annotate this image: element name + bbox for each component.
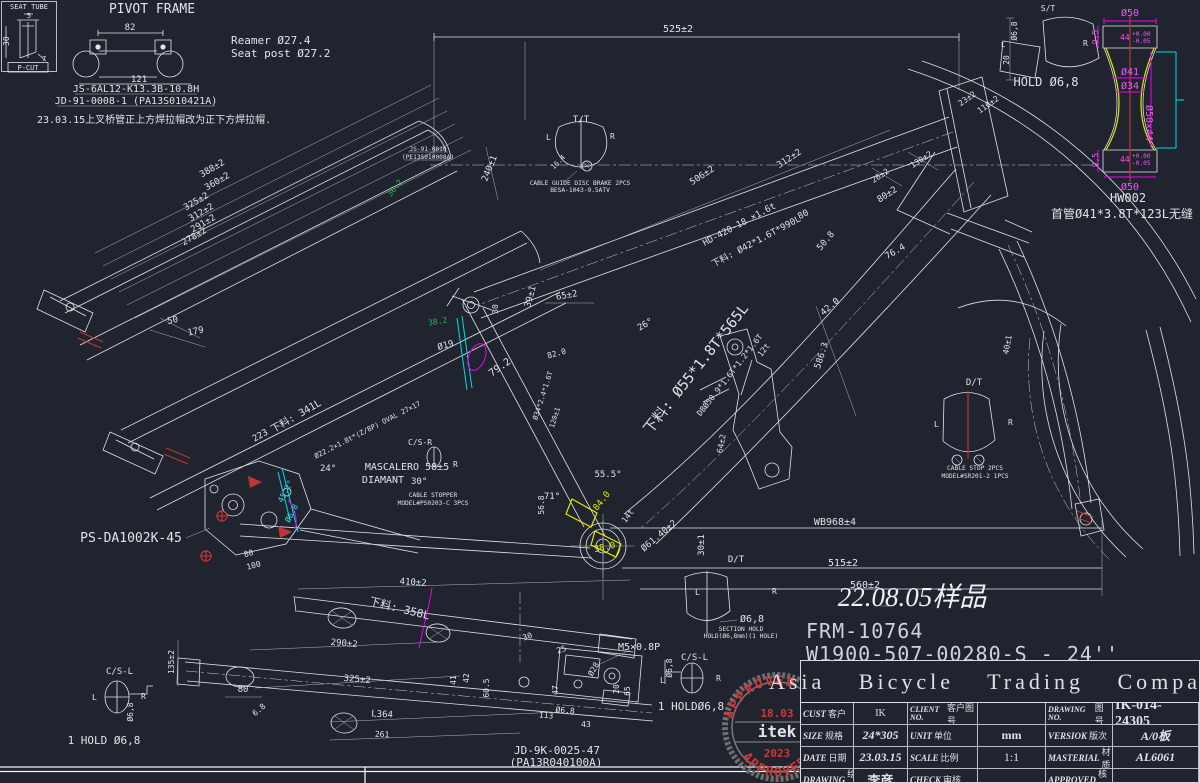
stamp-date: 18.03 [760,707,793,720]
csl-left-dia: Ø6,8 [125,702,135,721]
dim-410: 410±2 [399,577,427,589]
dim-30: 30 [2,36,11,46]
version-value: A/0板 [1113,725,1199,747]
dim-82: 82 [125,23,136,33]
csl-left-l: L [92,693,97,702]
dtr-left: L [934,420,939,429]
dtr-section-label: D/T [966,378,983,388]
dim-30-b: 30 [521,631,533,643]
dim-76-4: 76.4 [884,242,908,262]
dim-179: 179 [187,325,205,338]
hw-dia-34: Ø34 [1121,80,1139,92]
dim-64-2: 64±2 [715,433,727,454]
part-number-1: JS-6AL12-K13.3B-10.8H [73,84,199,95]
scale-cn: 比例 [941,751,959,764]
client-no-en: CLIENT NO. [910,706,945,722]
csl-left-label: C/S-L [106,667,133,677]
dim-80-2: 80±2 [876,185,900,205]
dim-42: 42 [462,673,471,683]
dim-586-3: 586.3 [813,341,831,370]
st-dim-20: 20 [1002,55,1011,65]
hw-44-top: 44 [1120,33,1130,42]
dim-290: 290±2 [330,638,358,650]
cable-guide-note-1: CABLE GUIDE DISC BRAKE 2PCS [530,180,631,187]
csl-right-l: L [660,676,665,685]
hw-dia-41: Ø41 [1121,66,1139,78]
dtr-right: R [1008,418,1013,427]
hw-tol-plus-bottom: +0.00 [1132,153,1151,160]
drawing-no-label: DRAWING NO.图号 [1046,703,1113,725]
dim-110-2: 110±2 [976,94,1001,115]
hw-9-5-bottom: 9,5 [1091,153,1100,168]
company-name: Asia Bicycle Trading Company [801,661,1199,703]
sample-date-label: 22.08.05样品 [838,582,987,612]
js91-part-b: (PE13S010008A) [402,154,454,161]
dt-hole-dia: Ø6,8 [740,613,764,625]
hold-note-right: 1 HOLDØ6,8 [658,700,724,713]
dia-61-40: Ø61.40±2 [639,518,679,554]
drawing-no-value: IK-014-24305 [1113,703,1199,725]
dim-6-8-s: 6.8 [251,702,268,718]
csr-right: R [453,460,458,469]
tt-left: L [546,133,551,142]
csr-label: C/S-R [408,438,432,447]
dim-38-2-green: 38.2 [427,315,448,327]
blank-358: 下料: 358L [368,594,432,623]
dim-50-8: 50.8 [815,230,837,253]
st-left: L [1001,41,1005,49]
mascalero-label: MASCALERO 58±5 [365,462,449,473]
dim-515: 515±2 [828,558,858,569]
unit-value: mm [978,725,1046,747]
drawn-en: DRAWING [803,776,845,783]
hw-tol-minus-bottom: -0.05 [1132,160,1151,167]
check-cn: 审核 [943,773,961,783]
approved-cn: 核准 [1098,769,1110,783]
csl-left-r: R [141,692,146,701]
tt-section-label: T/T [573,115,590,125]
cust-label: CUST客户 [801,703,854,725]
cust-en: CUST [803,710,826,718]
deg-71: 71° [544,492,560,502]
cable-stop-note-1: CABLE STOP 2PCS [947,465,1003,472]
st-hole-dia: Ø6,8 [1009,21,1019,40]
dia-6-8-cyan: Ø6.8 [282,502,300,524]
cable-stopper-2: MODEL#PS0203-C 3PCS [398,500,469,507]
dim-40-1: 40±1 [1001,334,1013,355]
client-no-cn: 客户图号 [947,703,975,725]
hw-44-bottom: 44 [1120,155,1130,164]
diamant-label: DIAMANT [362,475,404,486]
dim-wheelbase: WB968±4 [814,517,856,528]
hw-tol-minus-top: -0.05 [1132,38,1151,45]
hw-r-label: R [1083,39,1088,48]
dim-65-2: 65±2 [555,289,578,303]
dt-section-label: D/T [728,555,745,565]
dim-56-8: 56.8 [537,495,546,514]
part-number-2: JD-91-0008-1 (PA13S010421A) [55,96,218,107]
dim-50-left: 50 [166,315,179,327]
dim-30-mid: 30 [491,304,500,314]
version-label: VERSIOK版次 [1046,725,1113,747]
material-en: MASTERIAL [1048,754,1100,762]
dia-28: Ø28 [585,660,601,678]
cable-stop-note-2: MODEL#SR201-2 1PCS [941,473,1008,480]
stay-spec: Ø22.2×1.8t*(Z/8P) OVAL 27×17 [313,400,422,461]
dim-5: 5 [27,12,31,20]
st-hold-note: HOLD Ø6,8 [1013,75,1078,89]
deg-45-2-cyan: 45.2° [276,479,295,504]
csl-right-label: C/S-L [681,653,708,663]
dim-79-2: 79.2 [487,356,513,379]
dim-261: 261 [375,730,390,740]
dim-26-2: 26±2 [870,167,891,185]
client-no-value [978,703,1046,725]
dim-23-2: 23±2 [957,89,978,108]
unit-cn: 单位 [934,729,952,742]
js91-part: JS-91-0010 [409,146,447,153]
dim-7: 7 [42,55,46,63]
dim-100: 100 [245,559,261,571]
dim-20-b: 20 [612,684,621,694]
dim-41: 41 [449,675,458,685]
check-en: CHECK [910,776,941,783]
dt-right: R [772,587,777,596]
dim-25: 25 [555,644,567,656]
headtube-spec: 首管Ø41*3.8T*123L无缝 [1051,206,1193,221]
size-value: 24*305 [854,725,908,747]
hw-dia-50-top: Ø50 [1121,7,1139,19]
psda-part: PS-DA1002K-45 [80,531,182,546]
m5-thread-note: M5×0.8P [618,642,660,653]
cad-sheet: SEAT TUBE 5 30 7 P-CUT PIVOT FRAME 82 12… [0,0,1200,783]
title-block-grid: CUST客户 IK CLIENT NO.客户图号 DRAWING NO.图号 I… [801,703,1199,783]
deg-24: 24° [320,464,336,474]
annotations: SEAT TUBE 5 30 7 P-CUT PIVOT FRAME 82 12… [2,2,1193,769]
stamp-company: itek [758,722,797,741]
dim-14t: 14t [620,507,636,524]
dim-16-4: 16.4 [550,154,568,172]
dim-312-top: 312±2 [775,148,803,171]
dim-6-8-c: Ø6.8 [555,704,575,716]
check-label: CHECK审核 [908,769,978,783]
dim-120-1: 120±1 [548,406,562,429]
date-label: DATE日期 [801,747,854,769]
section-hold-1: SECTION HOLD [719,626,764,633]
cable-guide-note-2: BESA-1043-9.5ATV [550,187,610,194]
date-cn: 日期 [829,751,847,764]
csl-right-r: R [716,674,721,683]
dim-82-0: 82.0 [546,347,567,361]
version-cn: 版次 [1089,729,1107,742]
dim-60-5: 60.5 [482,678,491,697]
dim-84-0-yellow: 84.0 [592,490,613,513]
deg-30: 30° [411,477,427,487]
drawn-label: DRAWING绘图 [801,769,854,783]
dim-39-1: 39±1 [523,285,538,309]
dim-47: 47 [551,685,560,695]
scale-en: SCALE [910,754,939,762]
st-section-label: S/T [1041,4,1056,13]
scale-value: 1:1 [978,747,1046,769]
dim-36-2-green: 36.2 [385,178,404,199]
cable-stopper-1: CABLE STOPPER [409,492,458,499]
client-no-label: CLIENT NO.客户图号 [908,703,978,725]
hold-note-left: 1 HOLD Ø6,8 [68,734,141,747]
dim-325-b: 325±2 [343,674,371,686]
reamer-note: Reamer Ø27.4 [231,34,311,47]
csl-right-dia: Ø6,8 [664,658,674,677]
dim-43: 43 [581,720,591,729]
cust-value: IK [854,703,908,725]
drawing-no-cn: 图号 [1095,703,1110,725]
size-cn: 规格 [825,729,843,742]
pcut-label: P-CUT [17,64,39,72]
approved-value [1113,769,1199,783]
seatpost-note: Seat post Ø27.2 [231,47,330,60]
dim-506: 506±2 [688,165,716,188]
jd9k-part-b: (PA13R040100A) [510,756,603,769]
hw-9-5-top: 9,5 [1091,30,1100,45]
dia-19: Ø19 [436,338,455,353]
dim-65-b: 65 [623,686,632,696]
revision-note: 23.03.15上叉桥管正上方焊拉帽改为正下方焊拉帽. [37,113,271,126]
material-cn: 材质 [1102,747,1111,769]
dim-80-pivot: 80 [243,548,255,559]
dim-113: 113 [539,710,554,720]
drawn-cn: 绘图 [847,769,854,783]
dim-30-1: 30±1 [697,534,707,556]
section-hold-2: HOLD(Ø6,8mm)(1 HOLE) [704,632,779,640]
tt-right: R [610,132,615,141]
size-en: SIZE [803,732,823,740]
version-en: VERSIOK [1048,732,1087,740]
title-block: Asia Bicycle Trading Company CUST客户 IK C… [800,660,1200,783]
scale-label: SCALE比例 [908,747,978,769]
dim-223: 223 [251,428,270,445]
drawing-no-en: DRAWING NO. [1048,706,1093,722]
check-value [978,769,1046,783]
dt-left: L [695,588,700,597]
red-crosshair-markers [78,332,1093,562]
dim-240: 240±1 [480,154,499,183]
date-en: DATE [803,754,827,762]
pivot-frame-title: PIVOT FRAME [109,2,195,17]
seat-tube-box-title: SEAT TUBE [10,3,48,11]
size-label: SIZE规格 [801,725,854,747]
material-label: MASTERIAL材质 [1046,747,1113,769]
hw002-name: HW002 [1110,191,1146,205]
deg-26: 26° [636,317,655,334]
frm-number: FRM-10764 [806,619,923,643]
drawn-value: 李彦 [854,769,908,783]
dim-525: 525±2 [663,24,693,35]
cust-cn: 客户 [828,707,846,720]
dim-135-2: 135±2 [167,650,176,674]
deg-55-5: 55.5° [594,470,621,480]
hw-50x44: Ø50×44 [1143,105,1155,141]
dim-l364: L364 [371,709,393,720]
approved-label: APPROVED核准 [1046,769,1113,783]
stamp-year: 2023 [764,747,791,760]
material-value: AL6061 [1113,747,1199,769]
unit-label: UNIT单位 [908,725,978,747]
unit-en: UNIT [910,732,932,740]
hw-tol-plus-top: +0.00 [1132,31,1151,38]
dim-80-c: 80 [238,685,249,695]
dim-42-0: 42.0 [819,296,842,318]
approved-en: APPROVED [1048,776,1096,783]
date-value: 23.03.15 [854,747,908,769]
